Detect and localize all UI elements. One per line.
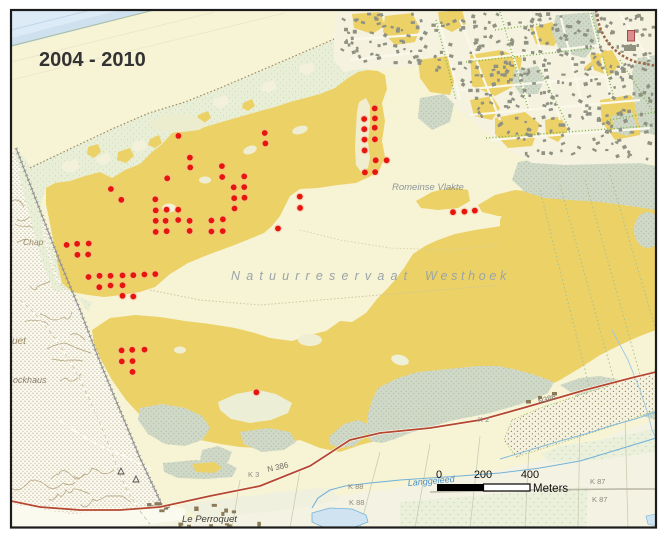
svg-text:N a t u u r r e s e r v a a t: N a t u u r r e s e r v a a t	[231, 269, 408, 283]
svg-text:0: 0	[436, 469, 442, 481]
svg-text:Romeinse Vlakte: Romeinse Vlakte	[392, 182, 464, 193]
svg-text:uet: uet	[12, 336, 27, 347]
svg-text:K 87: K 87	[592, 495, 607, 504]
svg-text:200: 200	[474, 469, 492, 481]
svg-text:K 2: K 2	[478, 415, 489, 424]
svg-text:Le Perroquet: Le Perroquet	[182, 514, 237, 525]
svg-text:K 88: K 88	[349, 498, 364, 507]
svg-text:K 88: K 88	[348, 482, 363, 491]
svg-text:K 87: K 87	[590, 477, 605, 486]
svg-text:K 3: K 3	[248, 470, 259, 479]
svg-text:2004 - 2010: 2004 - 2010	[39, 49, 146, 71]
svg-text:W e s t h o e k: W e s t h o e k	[425, 269, 507, 283]
svg-text:ockhaus: ockhaus	[13, 375, 47, 385]
svg-text:400: 400	[521, 469, 539, 481]
svg-text:Chap: Chap	[23, 237, 44, 247]
svg-text:Meters: Meters	[533, 483, 568, 495]
